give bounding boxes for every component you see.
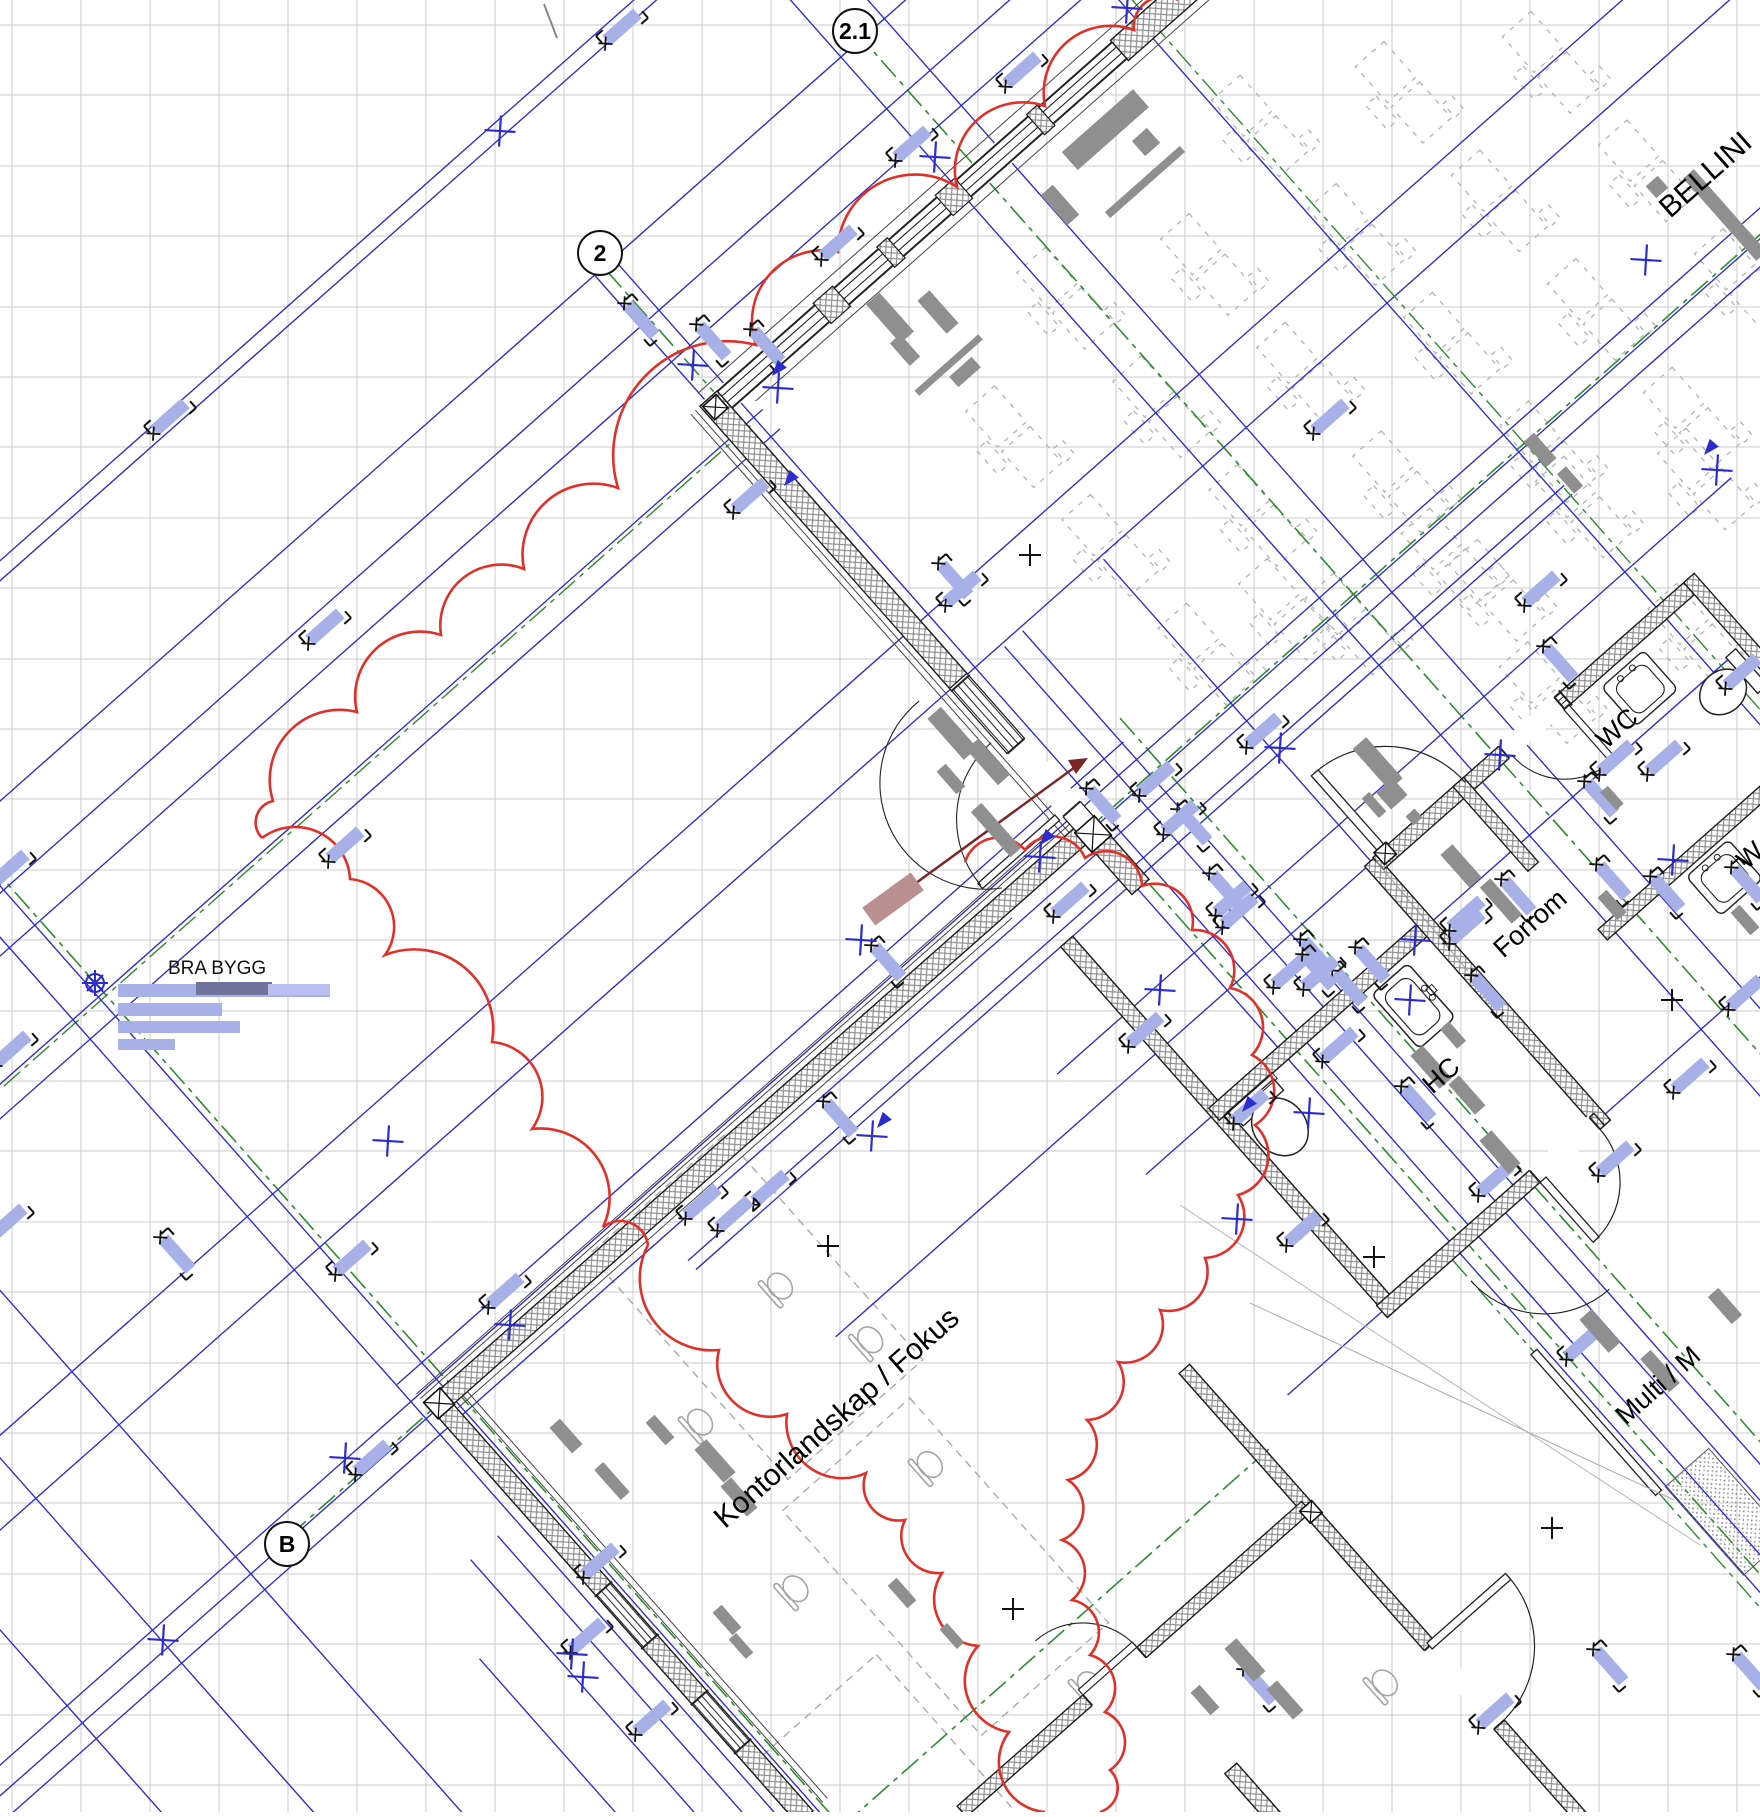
svg-text:BRA BYGG: BRA BYGG (168, 958, 266, 979)
svg-text:2: 2 (594, 240, 607, 266)
svg-text:B: B (279, 1531, 296, 1557)
svg-text:2.1: 2.1 (839, 18, 871, 44)
